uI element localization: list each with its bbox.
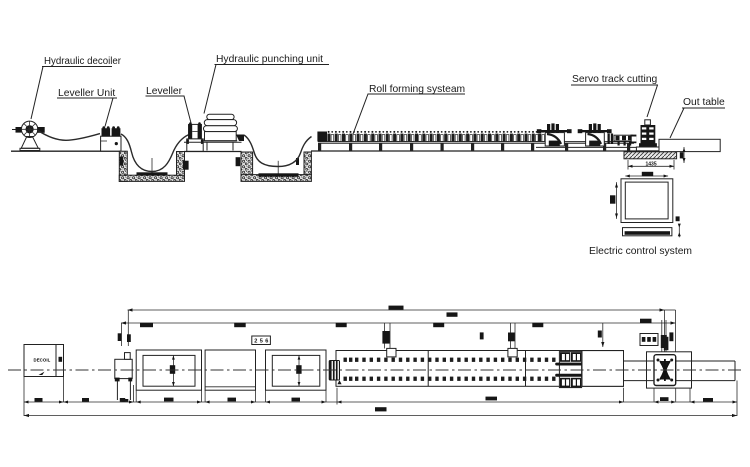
svg-text:1435: 1435 <box>646 161 657 167</box>
svg-text:Electric control system: Electric control system <box>589 246 692 257</box>
svg-text:Leveller Unit: Leveller Unit <box>58 88 115 99</box>
svg-text:Servo track cutting: Servo track cutting <box>572 74 658 85</box>
svg-text:DECOIL: DECOIL <box>34 358 51 363</box>
svg-text:Hydraulic decoiler: Hydraulic decoiler <box>44 56 122 67</box>
svg-text:Out table: Out table <box>683 97 725 108</box>
svg-text:Leveller: Leveller <box>146 86 183 97</box>
svg-text:Roll forming systeam: Roll forming systeam <box>369 84 465 95</box>
svg-text:256: 256 <box>254 339 271 345</box>
svg-text:Hydraulic punching unit: Hydraulic punching unit <box>216 54 323 65</box>
